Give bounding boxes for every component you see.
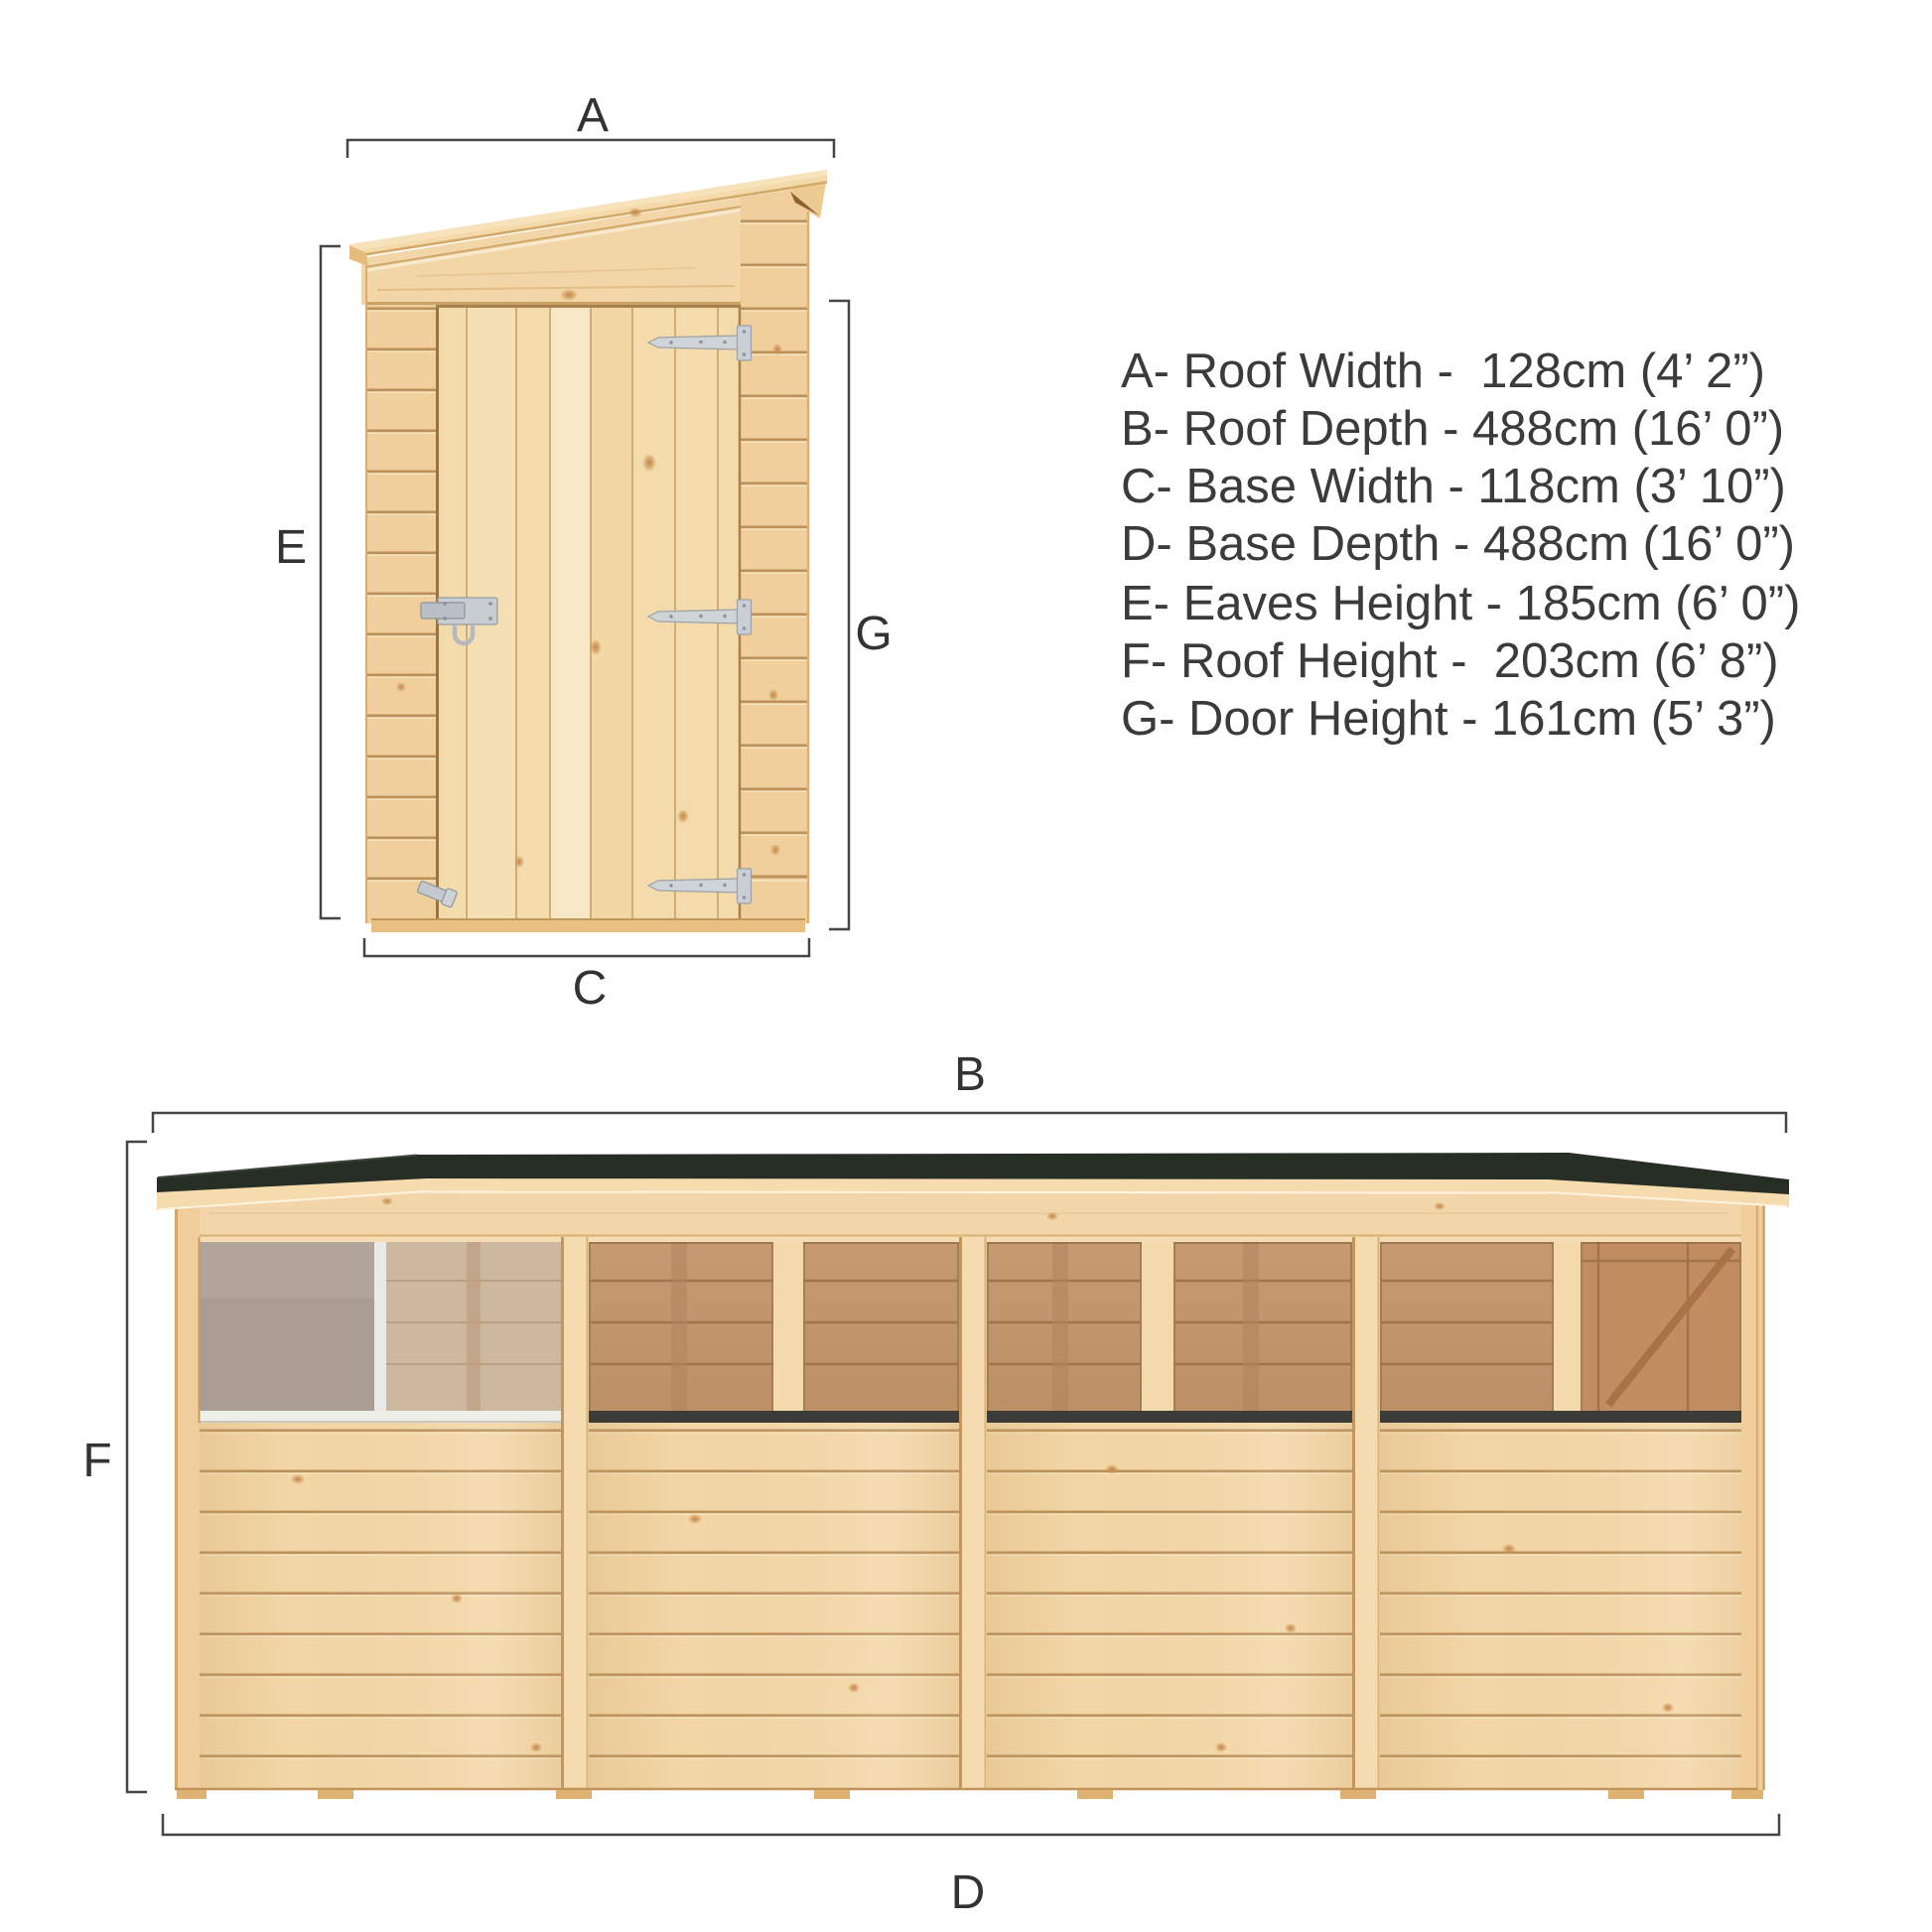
svg-text:B: B: [954, 1048, 986, 1101]
svg-text:F- Roof Height - 203cm (6’ 8”: F- Roof Height - 203cm (6’ 8”): [1121, 634, 1779, 688]
svg-text:A: A: [577, 89, 609, 142]
svg-text:F: F: [82, 1435, 111, 1487]
svg-text:A- Roof Width - 128cm (4’ 2”): A- Roof Width - 128cm (4’ 2”): [1121, 345, 1765, 398]
svg-text:E: E: [275, 521, 307, 574]
svg-text:D- Base Depth - 488cm (16’ 0”): D- Base Depth - 488cm (16’ 0”): [1121, 517, 1795, 571]
svg-text:C- Base Width - 118cm (3’ 10”): C- Base Width - 118cm (3’ 10”): [1121, 460, 1786, 513]
svg-text:G- Door Height - 161cm (5’ 3”): G- Door Height - 161cm (5’ 3”): [1121, 692, 1776, 746]
svg-text:D: D: [951, 1866, 986, 1919]
svg-text:G: G: [855, 608, 892, 660]
svg-text:E- Eaves Height - 185cm (6’ 0”: E- Eaves Height - 185cm (6’ 0”): [1121, 577, 1800, 630]
svg-text:C: C: [573, 962, 608, 1015]
svg-text:B- Roof Depth - 488cm (16’ 0”): B- Roof Depth - 488cm (16’ 0”): [1121, 402, 1784, 456]
